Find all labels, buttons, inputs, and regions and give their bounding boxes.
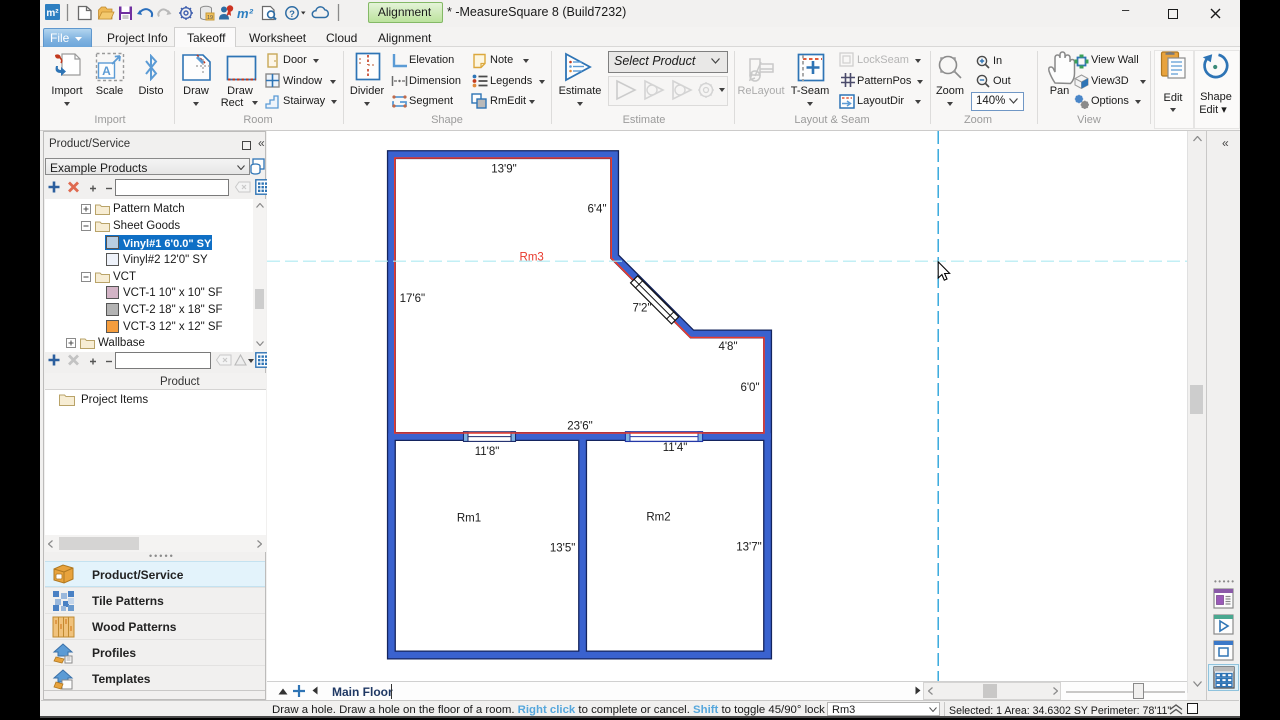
svg-text:A: A bbox=[102, 64, 111, 78]
svg-text:?: ? bbox=[289, 9, 295, 20]
svg-text:11'4": 11'4" bbox=[663, 442, 688, 454]
svg-text:13'5": 13'5" bbox=[550, 543, 575, 555]
svg-text:13'7": 13'7" bbox=[736, 542, 761, 554]
svg-text:17'6": 17'6" bbox=[400, 293, 425, 305]
svg-text:6'0": 6'0" bbox=[740, 382, 759, 394]
svg-text:6'4": 6'4" bbox=[587, 204, 606, 216]
svg-text:19: 19 bbox=[207, 15, 213, 21]
svg-text:Rm3: Rm3 bbox=[520, 252, 544, 264]
svg-text:Rm2: Rm2 bbox=[646, 512, 670, 524]
svg-text:7'2": 7'2" bbox=[632, 303, 651, 315]
svg-text:23'6": 23'6" bbox=[567, 421, 592, 433]
svg-text:11'8": 11'8" bbox=[475, 446, 500, 458]
svg-text:m²: m² bbox=[46, 8, 59, 19]
svg-text:4'8": 4'8" bbox=[718, 341, 737, 353]
svg-text:m²: m² bbox=[237, 6, 254, 21]
svg-text:13'9": 13'9" bbox=[491, 164, 516, 176]
svg-text:Rm1: Rm1 bbox=[457, 513, 481, 525]
